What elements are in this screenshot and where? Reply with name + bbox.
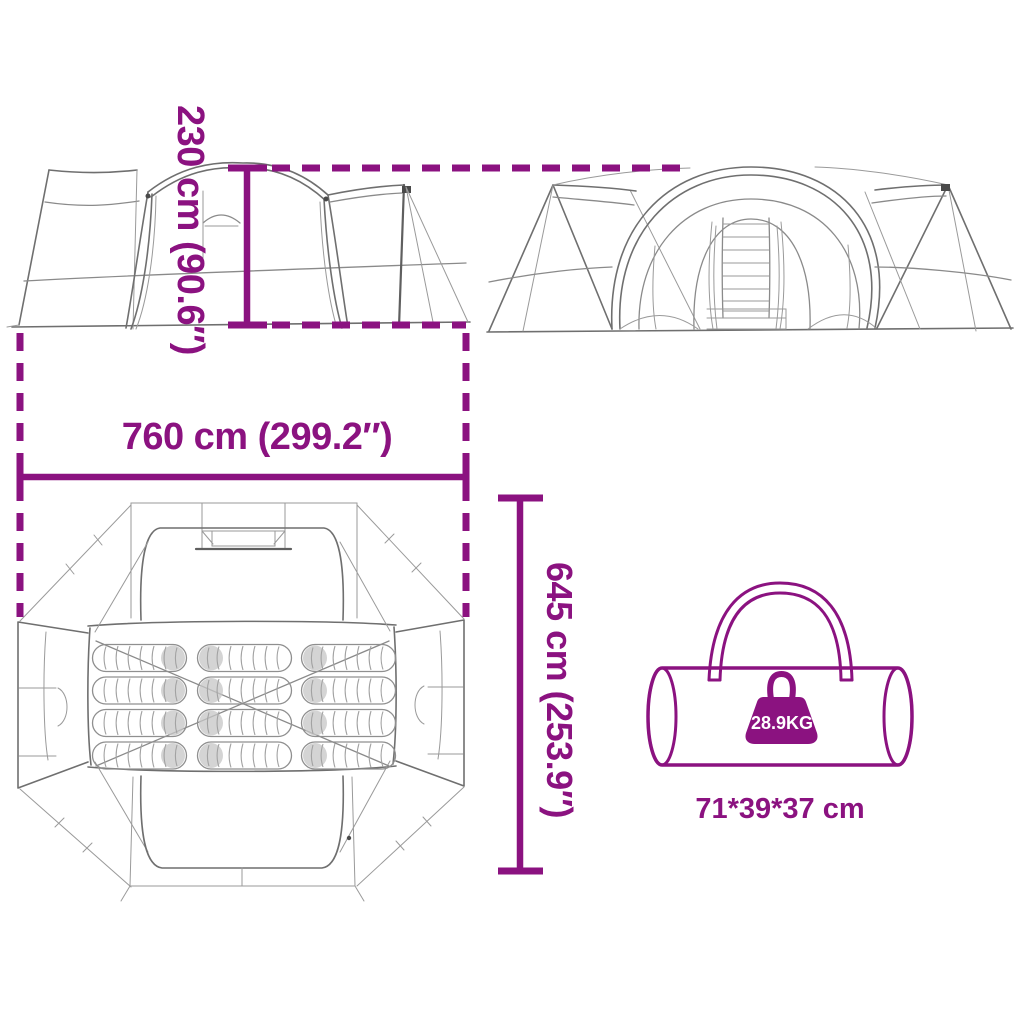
tent-width-label: 760 cm (299.2″) — [57, 415, 457, 459]
carry-bag-handle — [709, 583, 852, 680]
tent-side-view-sketch — [7, 163, 470, 329]
height-dimension-line — [228, 168, 688, 325]
tent-height-label: 230 cm (90.6″) — [168, 80, 212, 380]
depth-dimension-line — [498, 498, 543, 871]
product-dimension-diagram: 230 cm (90.6″) 760 cm (299.2″) 645 cm (2… — [0, 0, 1024, 1024]
width-dimension-line — [20, 333, 466, 617]
tent-floor-plan-sketch — [18, 503, 464, 901]
carry-bag-icon — [648, 583, 912, 765]
diagram-sketch — [0, 0, 1024, 1024]
tent-depth-label: 645 cm (253.9″) — [539, 540, 579, 840]
sleeping-bags — [93, 645, 396, 770]
tent-front-view-sketch — [487, 167, 1013, 332]
weight-icon — [745, 674, 817, 744]
bag-weight-label: 28.9KG — [732, 713, 832, 733]
bag-size-label: 71*39*37 cm — [630, 792, 930, 826]
